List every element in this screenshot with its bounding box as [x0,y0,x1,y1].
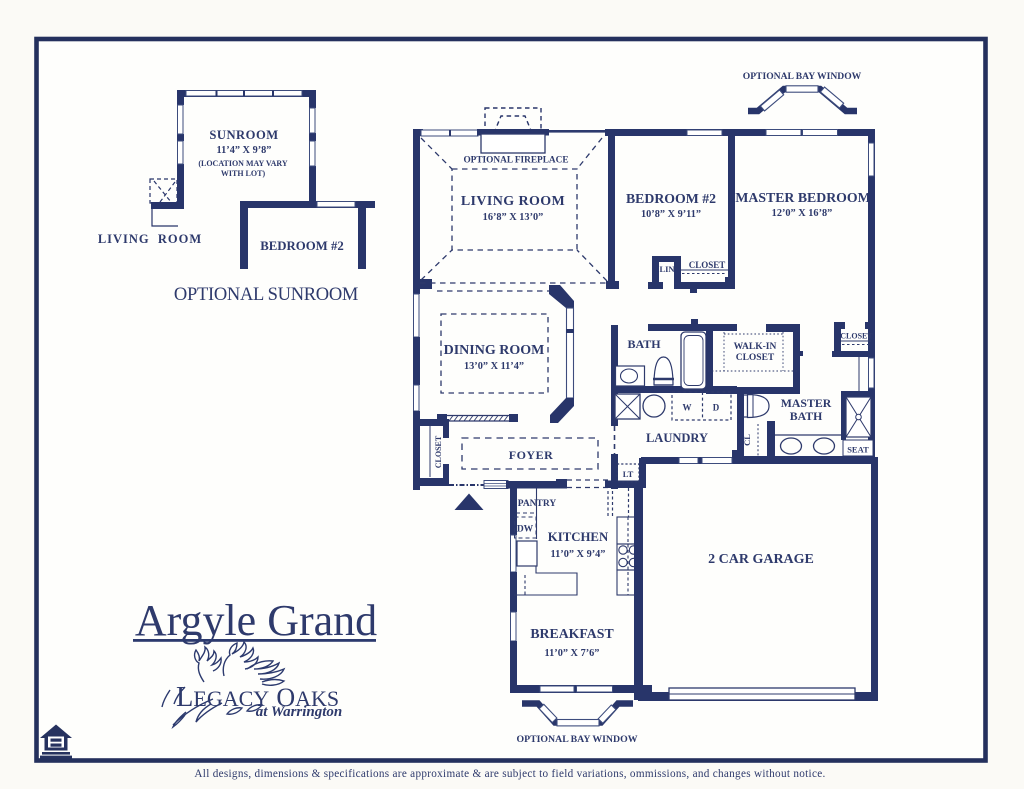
svg-text:SUNROOM: SUNROOM [209,128,278,142]
svg-text:CLOSET: CLOSET [434,435,443,468]
svg-text:D: D [713,403,720,413]
svg-text:LIVING ROOM: LIVING ROOM [98,232,202,246]
svg-text:2 CAR GARAGE: 2 CAR GARAGE [708,552,814,567]
svg-text:WALK-IN: WALK-IN [734,342,777,352]
svg-text:SEAT: SEAT [847,445,869,455]
svg-text:PANTRY: PANTRY [518,499,557,509]
svg-text:LT: LT [623,469,634,479]
svg-text:11’0” X 7’6”: 11’0” X 7’6” [545,648,600,659]
svg-text:13’0” X 11’4”: 13’0” X 11’4” [464,361,524,372]
svg-text:BATH: BATH [790,409,823,423]
svg-text:LIN: LIN [659,264,675,274]
svg-text:BATH: BATH [627,337,661,351]
svg-text:BREAKFAST: BREAKFAST [530,626,613,641]
svg-text:LAUNDRY: LAUNDRY [646,431,708,445]
svg-text:LIVING ROOM: LIVING ROOM [461,194,565,209]
svg-text:DINING ROOM: DINING ROOM [444,343,545,358]
svg-text:FOYER: FOYER [509,448,554,462]
svg-text:Argyle Grand: Argyle Grand [135,596,377,645]
svg-text:OPTIONAL FIREPLACE: OPTIONAL FIREPLACE [463,156,568,166]
svg-text:DW: DW [517,525,534,535]
svg-text:10’8” X 9’11”: 10’8” X 9’11” [641,209,701,220]
svg-text:OPTIONAL SUNROOM: OPTIONAL SUNROOM [174,285,358,305]
svg-text:11’4” X 9’8”: 11’4” X 9’8” [217,145,272,156]
svg-text:BEDROOM #2: BEDROOM #2 [626,191,716,206]
svg-text:W: W [683,403,692,413]
svg-text:CLOSET: CLOSET [840,332,873,341]
svg-text:CLOSET: CLOSET [736,353,775,363]
svg-text:OPTIONAL BAY WINDOW: OPTIONAL BAY WINDOW [516,734,637,745]
svg-text:CLOSET: CLOSET [689,260,726,270]
svg-text:WITH LOT): WITH LOT) [221,169,266,178]
svg-text:16’8” X 13’0”: 16’8” X 13’0” [483,212,544,223]
svg-text:at Warrington: at Warrington [256,704,343,720]
svg-text:11’0” X 9’4”: 11’0” X 9’4” [551,549,606,560]
svg-text:12’0” X 16’8”: 12’0” X 16’8” [772,208,833,219]
svg-text:All designs, dimensions & spec: All designs, dimensions & specifications… [194,768,825,780]
svg-text:MASTER BEDROOM: MASTER BEDROOM [735,190,870,205]
svg-text:MASTER: MASTER [781,396,832,410]
svg-text:OPTIONAL BAY WINDOW: OPTIONAL BAY WINDOW [743,71,862,82]
svg-text:KITCHEN: KITCHEN [548,530,609,544]
svg-text:(LOCATION MAY VARY: (LOCATION MAY VARY [198,159,288,168]
svg-text:BEDROOM #2: BEDROOM #2 [260,239,344,253]
